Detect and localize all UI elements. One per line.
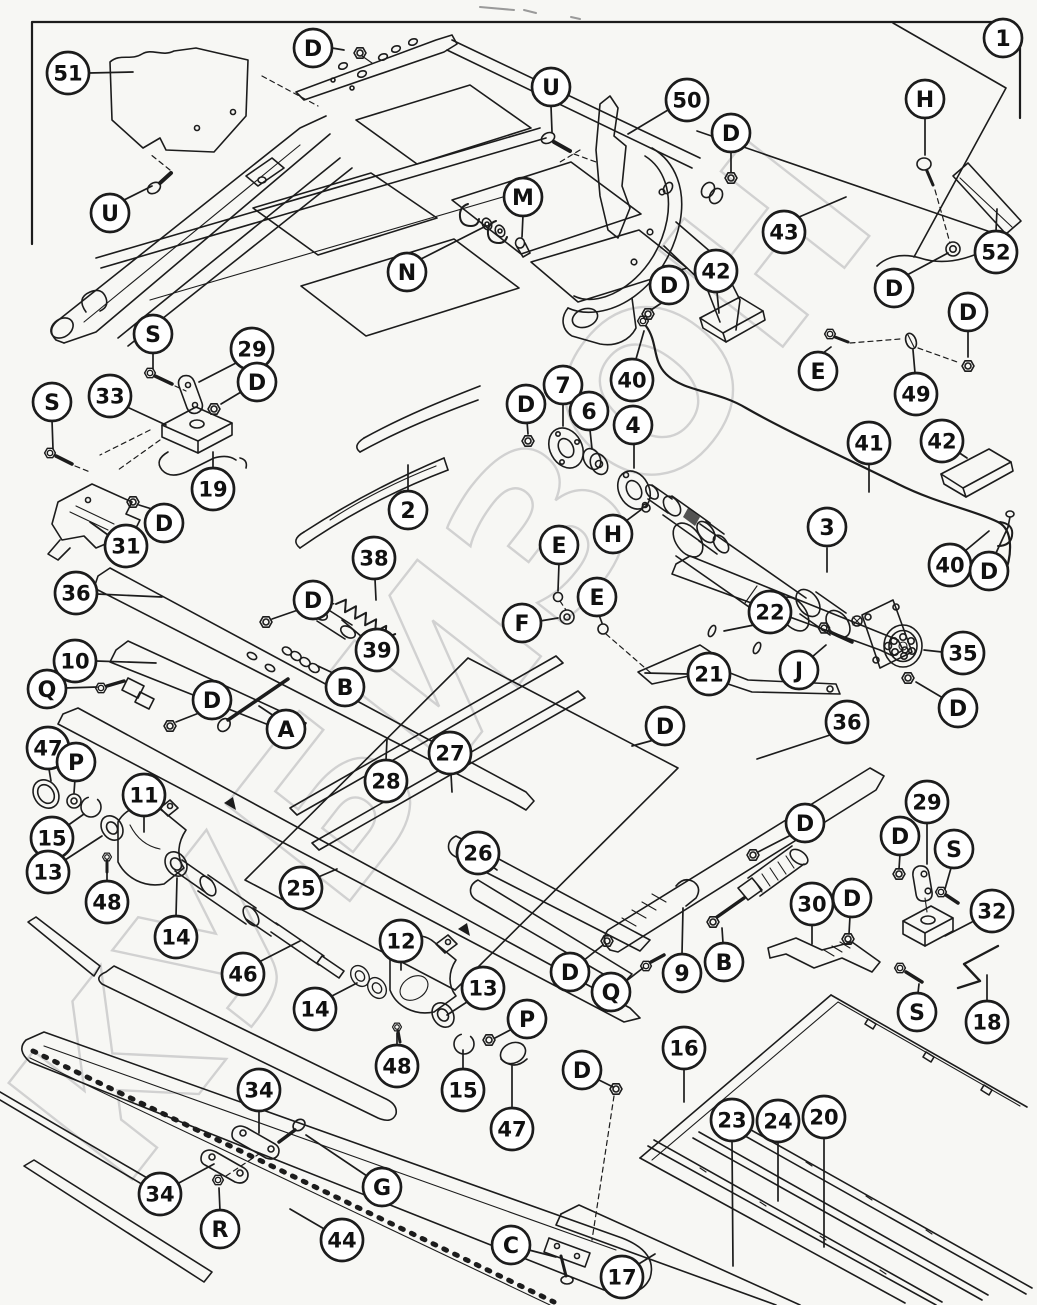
callout-label: N <box>398 261 416 286</box>
callout-label: 14 <box>300 998 329 1022</box>
callout-label: 50 <box>672 89 701 113</box>
callout-D-47: D <box>632 707 684 746</box>
block-32 <box>903 906 953 946</box>
callout-47-74: 47 <box>491 1066 533 1150</box>
callout-leader-line <box>52 420 53 449</box>
callout-label: 30 <box>797 893 826 917</box>
callout-leader-line <box>306 1135 367 1176</box>
callout-leader-line <box>272 610 298 619</box>
callout-label: 29 <box>912 791 941 815</box>
callout-label: 4 <box>625 414 640 439</box>
callout-label: 33 <box>95 385 124 409</box>
callout-leader-line <box>176 713 199 722</box>
callout-leader-line <box>945 922 972 936</box>
snap-ring-15b <box>454 1034 474 1054</box>
callout-label: D <box>722 122 740 147</box>
callout-R-98: R <box>201 1188 239 1248</box>
callout-leader-line <box>65 687 97 688</box>
callout-label: 3 <box>819 516 834 541</box>
callout-D-17: D <box>221 363 276 404</box>
callout-label: S <box>145 323 161 348</box>
callout-36-46: 36 <box>757 701 868 759</box>
callout-label: D <box>304 37 322 62</box>
callout-label: 52 <box>981 241 1010 265</box>
callout-leader-line <box>682 908 683 954</box>
callout-31-31: 31 <box>90 522 147 567</box>
callout-D-80: D <box>758 804 824 852</box>
callout-label: H <box>916 88 934 113</box>
callout-D-82: D <box>881 817 919 869</box>
callout-label: S <box>946 838 962 863</box>
callout-32-86: 32 <box>945 890 1013 936</box>
callout-leader-line <box>996 525 1009 553</box>
callout-label: 39 <box>362 639 391 663</box>
callout-label: H <box>604 523 622 548</box>
machine-outline <box>893 23 1006 257</box>
callout-30-84: 30 <box>791 883 833 944</box>
callout-label: 40 <box>617 369 646 393</box>
exploded-view-drawing: КУБИЗОН <box>0 0 1037 1305</box>
parts-diagram-page: КУБИЗОН <box>0 0 1037 1305</box>
callout-label: C <box>503 1234 519 1259</box>
callout-label: D <box>660 274 678 299</box>
callout-36-50: 36 <box>55 572 162 614</box>
callout-label: J <box>793 659 803 684</box>
callout-label: P <box>68 751 84 776</box>
callout-50-4: 50 <box>628 79 708 134</box>
cap-47b <box>497 1038 529 1067</box>
callout-label: 18 <box>972 1011 1001 1035</box>
callout-leader-line <box>965 531 989 551</box>
callout-S-83: S <box>935 830 973 889</box>
nut-R <box>213 1175 224 1184</box>
bearing-13b <box>428 999 459 1032</box>
callout-label: D <box>561 961 579 986</box>
callout-label: 42 <box>927 430 956 454</box>
block-33 <box>162 407 232 453</box>
callout-label: 48 <box>92 891 121 915</box>
callout-label: 26 <box>463 842 492 866</box>
callout-label: M <box>512 186 534 211</box>
bolt-Q-b <box>641 955 664 971</box>
callout-label: D <box>203 689 221 714</box>
callout-S-15: S <box>134 315 172 369</box>
callout-label: U <box>101 202 119 227</box>
callout-label: 15 <box>37 827 66 851</box>
callout-leader-line <box>945 868 951 889</box>
bearing-13a <box>97 812 128 845</box>
callout-leader-line <box>332 48 344 50</box>
bolt-Q-left <box>96 681 124 693</box>
callout-label: 36 <box>832 711 861 735</box>
callout-label: 48 <box>382 1055 411 1079</box>
callout-B-79: B <box>705 928 743 981</box>
callout-label: 20 <box>809 1106 838 1130</box>
callout-label: D <box>796 812 814 837</box>
callout-leader-line <box>812 645 826 657</box>
callout-leader-line <box>221 392 241 404</box>
callout-label: D <box>949 697 967 722</box>
callout-label: 43 <box>769 221 798 245</box>
bracket-30 <box>768 938 880 972</box>
callout-12-69: 12 <box>380 920 422 970</box>
callout-label: 28 <box>371 770 400 794</box>
callout-label: D <box>517 393 535 418</box>
callout-leader-line <box>375 579 376 600</box>
callout-leader-line <box>732 1141 733 1266</box>
callout-label: 25 <box>286 877 315 901</box>
callout-label: F <box>514 612 529 637</box>
nut-P-b <box>483 1035 495 1045</box>
callout-label: D <box>959 301 977 326</box>
callout-leader-line <box>89 72 133 73</box>
callout-34-96: 34 <box>238 1069 280 1133</box>
callout-label: R <box>212 1218 229 1243</box>
callout-label: 41 <box>854 432 883 456</box>
callout-label: 7 <box>555 374 570 399</box>
callout-label: D <box>248 371 266 396</box>
bar-17 <box>556 1205 800 1305</box>
shield-plate-50 <box>560 96 630 238</box>
callout-41-33: 41 <box>848 422 890 492</box>
callout-label: 11 <box>129 784 158 808</box>
callout-label: Q <box>38 678 57 703</box>
callout-label: D <box>843 887 861 912</box>
callout-label: E <box>589 586 604 611</box>
callout-leader-line <box>522 215 523 237</box>
callout-D-90: D <box>563 1051 613 1089</box>
callout-leader-line <box>996 209 997 231</box>
callout-label: B <box>337 676 354 701</box>
callout-label: U <box>542 76 560 101</box>
nut-D <box>354 48 366 58</box>
link-29b <box>913 866 932 901</box>
callout-D-54: D <box>176 681 231 722</box>
callout-23-91: 23 <box>711 1099 753 1266</box>
bolt-U-left <box>145 173 171 196</box>
callout-49-22: 49 <box>895 350 937 415</box>
callout-label: D <box>980 560 998 585</box>
callout-leader-line <box>625 968 643 982</box>
callout-S-19: S <box>33 383 71 449</box>
callout-label: 24 <box>763 1110 792 1134</box>
shield-plate-51 <box>110 48 318 170</box>
callout-label: 49 <box>901 383 930 407</box>
gearbox-35 <box>818 600 922 683</box>
callout-leader-line <box>724 625 754 631</box>
callout-17-94: 17 <box>601 1254 655 1298</box>
callout-label: 12 <box>386 930 415 954</box>
bolt-S-r2 <box>895 963 922 982</box>
washer-N <box>480 217 493 232</box>
callout-leader-line <box>219 1188 220 1211</box>
callout-label: 15 <box>448 1079 477 1103</box>
callout-leader-line <box>199 363 236 382</box>
callout-label: 47 <box>497 1118 526 1142</box>
callout-18-88: 18 <box>966 975 1008 1043</box>
callout-leader-line <box>849 916 850 934</box>
callout-42-34: 42 <box>921 420 967 462</box>
callout-14-75: 14 <box>294 983 357 1030</box>
callout-26-68: 26 <box>457 832 499 874</box>
callout-leader-line <box>290 1209 326 1230</box>
callout-label: 46 <box>228 963 257 987</box>
spring-pin-18 <box>958 946 998 988</box>
callout-leader-line <box>529 1250 556 1257</box>
callout-label: D <box>885 277 903 302</box>
callout-S-87: S <box>898 984 936 1031</box>
callout-leader-line <box>124 186 152 200</box>
callout-52-11: 52 <box>975 209 1017 273</box>
callout-leader-line <box>96 661 156 663</box>
callout-leader-line <box>924 650 942 652</box>
callout-D-1: D <box>294 29 344 67</box>
callout-label: 16 <box>669 1037 698 1061</box>
callout-label: S <box>909 1001 925 1026</box>
callout-P-71: P <box>495 1000 546 1038</box>
callout-leader-line <box>918 984 919 993</box>
callout-label: Q <box>602 981 621 1006</box>
callout-label: 42 <box>701 260 730 284</box>
callout-label: P <box>519 1008 535 1033</box>
callout-D-45: D <box>916 682 977 727</box>
callout-16-89: 16 <box>663 1027 705 1102</box>
callout-label: D <box>155 512 173 537</box>
bolt-S-left <box>45 448 90 472</box>
callout-label: 29 <box>237 338 266 362</box>
callout-leader-line <box>632 740 654 746</box>
lever-bar-36-right <box>601 768 884 971</box>
callout-label: 1 <box>995 27 1010 52</box>
callout-leader-line <box>916 682 943 698</box>
callout-1-0: 1 <box>984 19 1022 57</box>
callout-2-28: 2 <box>389 465 427 529</box>
link-34a <box>232 1126 279 1159</box>
callout-H-5: H <box>906 80 944 155</box>
callout-label: S <box>44 391 60 416</box>
callout-N-9: N <box>388 226 486 291</box>
callout-15-73: 15 <box>442 1050 484 1111</box>
callout-33-18: 33 <box>89 375 166 425</box>
wear-strips-20-23-24 <box>648 1126 1032 1305</box>
callout-label: 35 <box>948 642 977 666</box>
callout-label: A <box>277 718 294 743</box>
callout-J-43: J <box>780 645 826 689</box>
callout-label: E <box>810 360 825 385</box>
callout-U-7: U <box>91 186 152 232</box>
callout-label: 2 <box>400 499 415 524</box>
callout-leader-line <box>127 407 166 425</box>
callout-label: 40 <box>935 554 964 578</box>
seal-47a <box>28 775 64 813</box>
callout-label: D <box>304 589 322 614</box>
bolt-S-r1 <box>936 887 958 903</box>
callout-leader-line <box>645 673 688 674</box>
callout-label: 10 <box>60 650 89 674</box>
callout-leader-line <box>757 735 830 759</box>
callout-label: 36 <box>61 582 90 606</box>
callout-label: D <box>656 715 674 740</box>
callout-label: 34 <box>244 1079 273 1103</box>
callout-label: 21 <box>694 663 723 687</box>
callout-19-29: 19 <box>192 452 234 510</box>
callout-leader-line <box>49 769 51 781</box>
callout-label: 17 <box>607 1266 636 1290</box>
callout-U-3: U <box>532 68 570 132</box>
clamp-plate-C <box>544 1084 622 1284</box>
callout-48-72: 48 <box>376 1033 418 1087</box>
callout-leader-line <box>913 350 915 373</box>
callout-label: B <box>716 951 733 976</box>
callout-D-23: D <box>949 293 987 357</box>
callout-label: 38 <box>359 547 388 571</box>
callout-label: E <box>551 534 566 559</box>
callout-label: 23 <box>717 1109 746 1133</box>
callout-label: 44 <box>327 1229 356 1253</box>
callout-label: 19 <box>198 478 227 502</box>
callout-label: 27 <box>435 742 464 766</box>
callout-M-8: M <box>504 178 542 237</box>
callout-leader-line <box>421 226 486 259</box>
callout-leader-line <box>451 774 452 792</box>
grommet-49 <box>904 332 919 350</box>
callout-label: D <box>891 825 909 850</box>
callout-D-49: D <box>272 581 332 619</box>
callout-leader-line <box>176 878 177 916</box>
callout-label: 6 <box>581 400 596 425</box>
callout-label: G <box>373 1176 391 1201</box>
callout-13-70: 13 <box>447 967 504 1015</box>
callout-label: 9 <box>674 962 689 987</box>
callout-label: 31 <box>111 535 140 559</box>
callout-label: 34 <box>145 1183 174 1207</box>
callout-leader-line <box>558 563 559 591</box>
callout-leader-line <box>551 106 552 132</box>
callout-D-85: D <box>833 879 871 934</box>
callout-label: 13 <box>468 977 497 1001</box>
callout-44-100: 44 <box>290 1209 363 1261</box>
callout-leader-line <box>722 928 723 943</box>
callout-leader-line <box>386 739 387 760</box>
callout-P-58: P <box>57 743 95 793</box>
callout-label: 32 <box>977 900 1006 924</box>
callout-label: D <box>573 1059 591 1084</box>
callout-leader-line <box>583 945 603 961</box>
callout-D-36: D <box>970 525 1009 590</box>
callout-21-42: 21 <box>645 653 730 695</box>
callout-Q-77: Q <box>592 968 643 1011</box>
washer-P-a <box>67 794 81 808</box>
callout-label: 22 <box>755 601 784 625</box>
callout-3-32: 3 <box>808 508 846 572</box>
callout-leader-line <box>97 594 162 597</box>
callout-35-44: 35 <box>924 632 984 674</box>
callout-leader-line <box>628 110 668 134</box>
callout-label: 14 <box>161 926 190 950</box>
callout-24-92: 24 <box>757 1100 799 1201</box>
callout-label: 51 <box>53 62 82 86</box>
bolt-J <box>818 623 852 642</box>
callout-label: 13 <box>33 861 62 885</box>
